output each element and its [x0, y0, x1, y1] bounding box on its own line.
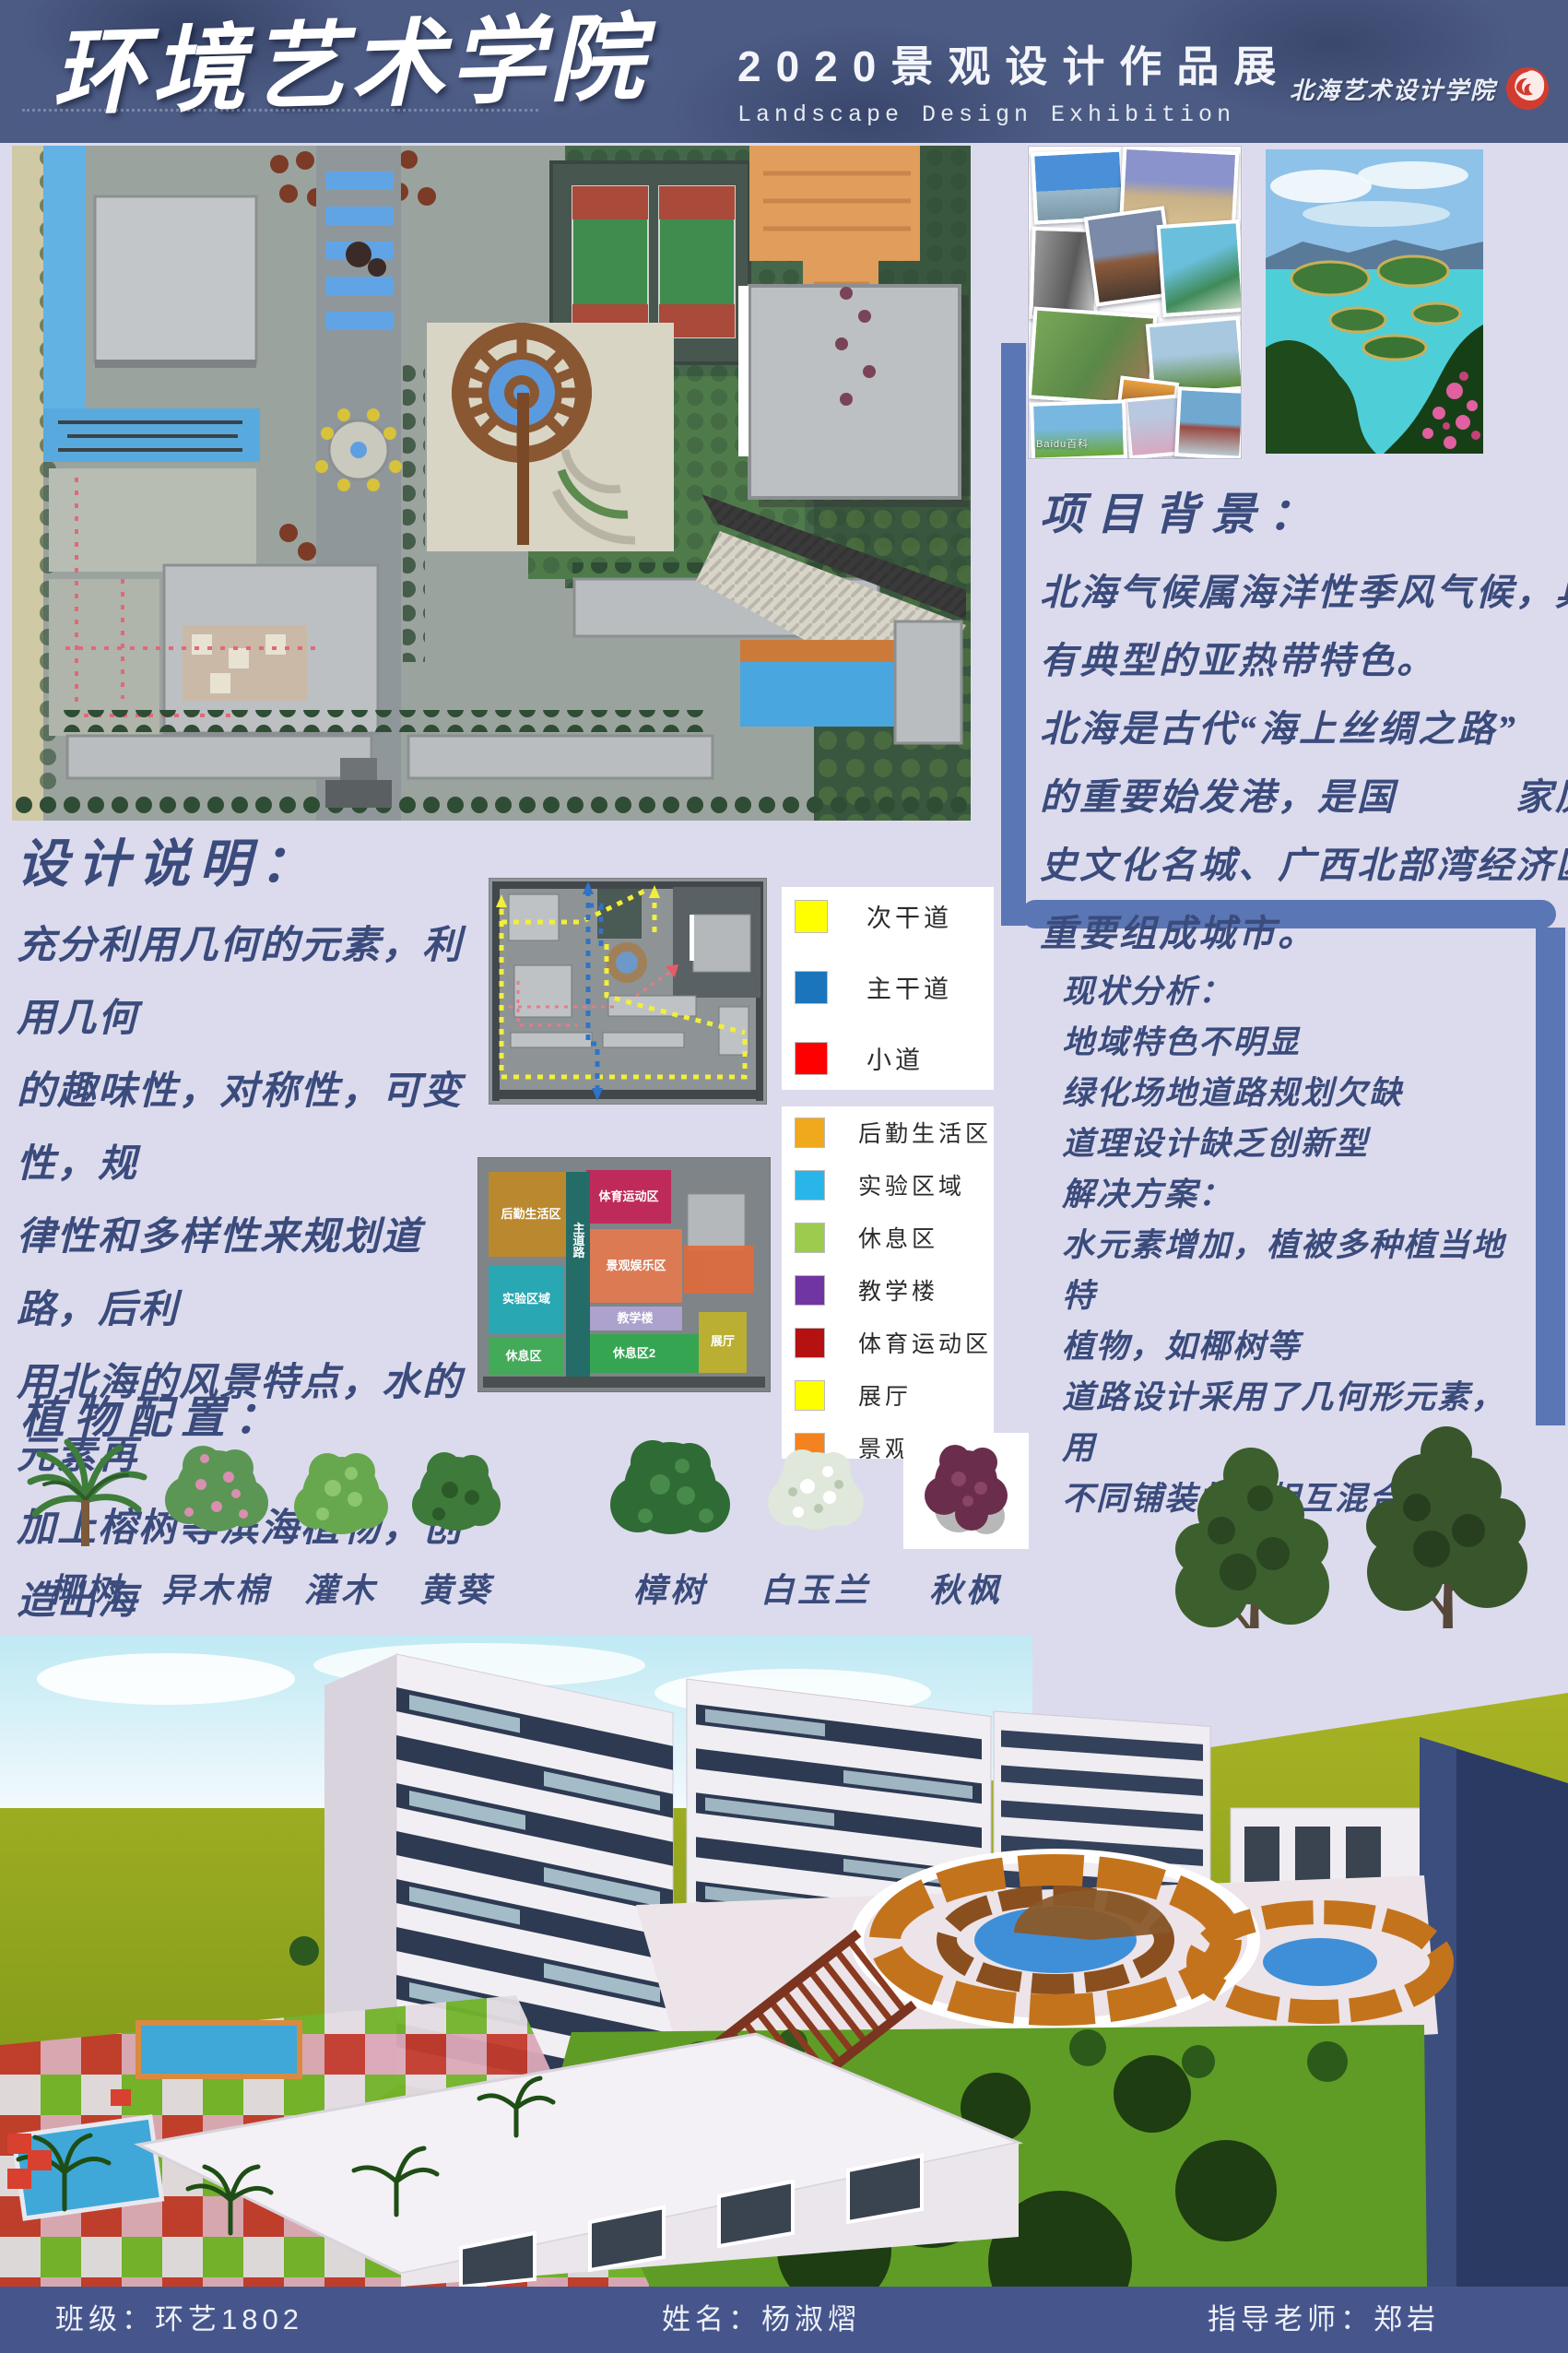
right-edge-bar — [1536, 928, 1565, 1425]
zone-label: 景观娱乐区 — [606, 1259, 666, 1272]
status-line: 绿化场地道路规划欠缺 — [1062, 1068, 1532, 1118]
design-notes-title: 设计说明： — [17, 822, 489, 897]
plant-item: 白玉兰 — [747, 1431, 885, 1612]
legend-row: 主干道 — [795, 969, 994, 1005]
plant-item: 异木棉 — [147, 1431, 286, 1612]
legend-label: 次干道 — [867, 898, 952, 934]
legend-label: 展厅 — [858, 1378, 912, 1412]
name-field: 姓名：杨淑熠 — [662, 2287, 861, 2353]
legend-row: 次干道 — [795, 898, 994, 934]
legend-label: 主干道 — [867, 969, 952, 1005]
exhibition-subtitle: Landscape Design Exhibition — [737, 101, 1291, 128]
class-field: 班级：环艺1802 — [55, 2287, 303, 2353]
advisor-field: 指导老师：郑岩 — [1208, 2287, 1440, 2353]
plant-label: 秋枫 — [902, 1564, 1031, 1612]
status-line: 现状分析： — [1062, 966, 1532, 1017]
status-line: 地域特色不明显 — [1062, 1017, 1532, 1068]
road-analysis-diagram — [489, 878, 767, 1105]
legend-swatch — [795, 1328, 825, 1358]
zone-label-main-road: 主道路 — [572, 1222, 585, 1259]
autumn-maple-image — [902, 1431, 1031, 1558]
silk-floss-tree-image — [147, 1431, 286, 1558]
project-background-line: 史文化名城、广西北部湾经济区 — [1040, 832, 1562, 900]
legend-label: 体育运动区 — [858, 1326, 992, 1359]
zone-label: 休息区 — [504, 1349, 541, 1363]
legend-label: 教学楼 — [858, 1273, 938, 1307]
legend-swatch — [795, 971, 828, 1004]
road-legend: 次干道 主干道 小道 — [782, 887, 994, 1090]
watermark-label: Baidu百科 — [1036, 436, 1089, 451]
coconut-palm-image — [17, 1431, 155, 1558]
master-plan-map — [12, 146, 971, 821]
legend-swatch — [795, 1117, 825, 1148]
plant-label: 异木棉 — [147, 1564, 286, 1612]
campus-render-image — [0, 1628, 1568, 2287]
project-background-line: 北海气候属海洋性季风气候，具 — [1040, 559, 1562, 627]
project-background-line: 北海是古代“海上丝绸之路” — [1040, 695, 1562, 763]
swirl-logo-icon — [1503, 65, 1551, 112]
zone-label: 体育运动区 — [598, 1189, 658, 1203]
island-lake-photo — [1266, 149, 1483, 454]
school-logo: 北海艺术设计学院 — [1290, 65, 1551, 112]
legend-label: 实验区域 — [858, 1168, 965, 1201]
plant-label: 樟树 — [592, 1564, 749, 1612]
status-line: 道理设计缺乏创新型 — [1062, 1118, 1532, 1169]
legend-row: 休息区 — [795, 1221, 994, 1254]
legend-row: 体育运动区 — [795, 1326, 994, 1359]
legend-row: 实验区域 — [795, 1168, 994, 1201]
hibiscus-image — [387, 1431, 525, 1558]
zone-label: 展厅 — [711, 1334, 735, 1348]
footer-bar: 班级：环艺1802 姓名：杨淑熠 指导老师：郑岩 — [0, 2287, 1568, 2353]
status-line: 水元素增加，植被多种植当地特 — [1062, 1220, 1532, 1321]
plant-item: 黄葵 — [387, 1431, 525, 1612]
exhibition-title: 2020景观设计作品展 — [737, 33, 1291, 94]
project-background-line: 的重要始发港，是国 家历 — [1040, 763, 1562, 832]
legend-swatch — [795, 1042, 828, 1075]
design-notes-line: 的趣味性，对称性，可变性，规 — [17, 1056, 489, 1201]
legend-swatch — [795, 1170, 825, 1200]
school-title: 环境艺术学院 — [50, 0, 679, 145]
project-background-line: 重要组成城市。 — [1040, 900, 1562, 968]
legend-label: 休息区 — [858, 1221, 938, 1254]
legend-swatch — [795, 1380, 825, 1411]
white-magnolia-image — [747, 1431, 885, 1558]
plant-label: 白玉兰 — [747, 1564, 885, 1612]
project-background-section: 项目背景： 北海气候属海洋性季风气候，具 有典型的亚热带特色。 北海是古代“海上… — [1040, 478, 1562, 968]
status-line: 解决方案： — [1062, 1169, 1532, 1220]
plant-label: 椰树 — [17, 1564, 155, 1612]
design-notes-line: 充分利用几何的元素，利用几何 — [17, 910, 489, 1056]
zoning-analysis-diagram: 后勤生活区 体育运动区 实验区域 景观娱乐区 教学楼 休息区 休息区2 展厅 主… — [477, 1157, 771, 1392]
legend-row: 后勤生活区 — [795, 1116, 994, 1149]
zone-label: 教学楼 — [616, 1311, 653, 1325]
beihai-photo-collage: Baidu百科 — [1028, 146, 1242, 459]
collage-photo-red-bridge — [1174, 386, 1242, 459]
plant-item: 椰树 — [17, 1431, 155, 1612]
project-background-title: 项目背景： — [1040, 478, 1562, 542]
legend-swatch — [795, 900, 828, 933]
legend-row: 教学楼 — [795, 1273, 994, 1307]
zone-legend: 后勤生活区 实验区域 休息区 教学楼 体育运动区 展厅 景观娱乐区 — [782, 1106, 994, 1459]
plant-item: 樟树 — [592, 1431, 749, 1612]
legend-swatch — [795, 1223, 825, 1253]
zone-label: 实验区域 — [502, 1292, 550, 1306]
zone-label: 后勤生活区 — [501, 1207, 560, 1221]
school-logo-text: 北海艺术设计学院 — [1290, 72, 1496, 106]
legend-label: 小道 — [867, 1040, 924, 1076]
camphor-tree-image — [592, 1431, 749, 1558]
poster-root: 环境艺术学院 2020景观设计作品展 Landscape Design Exhi… — [0, 0, 1568, 2353]
legend-swatch — [795, 1275, 825, 1306]
design-notes-line: 律性和多样性来规划道路，后利 — [17, 1201, 489, 1347]
vertical-divider-bar — [1001, 343, 1026, 926]
project-background-line: 有典型的亚热带特色。 — [1040, 627, 1562, 695]
header-banner: 环境艺术学院 2020景观设计作品展 Landscape Design Exhi… — [0, 0, 1568, 143]
collage-photo-coast — [1157, 219, 1242, 317]
status-line: 植物，如椰树等 — [1062, 1321, 1532, 1372]
zone-label: 休息区2 — [612, 1346, 655, 1360]
legend-row: 小道 — [795, 1040, 994, 1076]
plant-item: 秋枫 — [902, 1431, 1031, 1612]
plant-label: 黄葵 — [387, 1564, 525, 1612]
legend-row: 展厅 — [795, 1378, 994, 1412]
legend-label: 后勤生活区 — [858, 1116, 992, 1149]
exhibition-title-block: 2020景观设计作品展 Landscape Design Exhibition — [737, 33, 1291, 128]
